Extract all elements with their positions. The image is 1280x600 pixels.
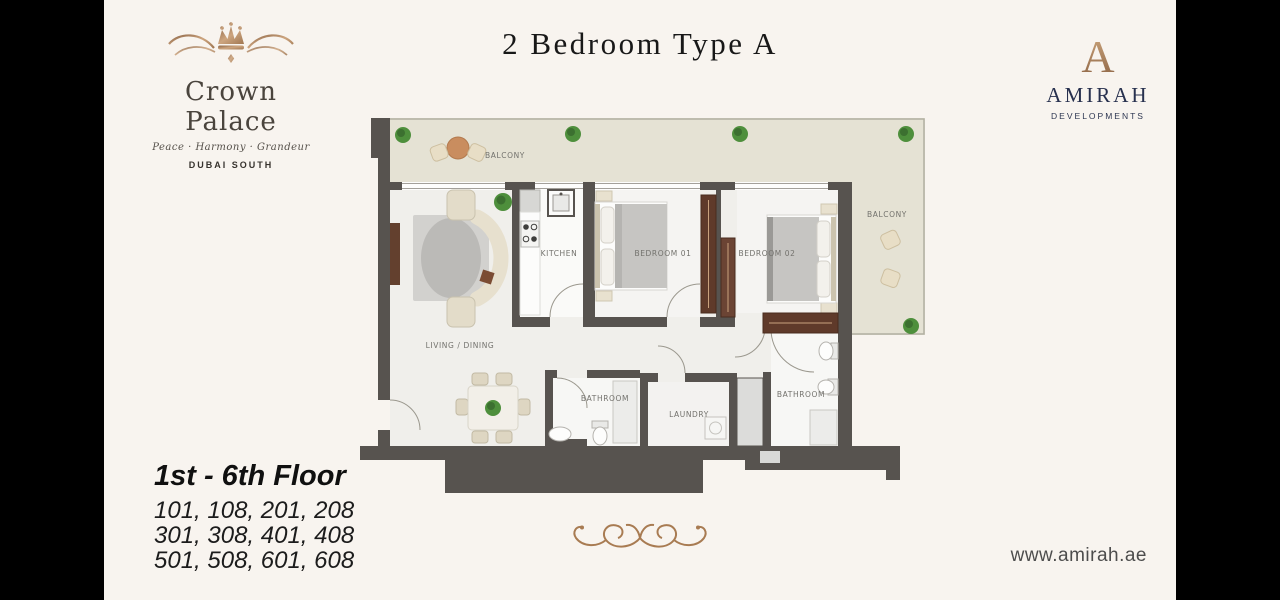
label-kitchen: KITCHEN: [541, 249, 578, 258]
wall-notch: [760, 451, 780, 463]
label-laundry: LAUNDRY: [669, 410, 709, 419]
amirah-monogram-icon: A: [1068, 30, 1128, 78]
unit-numbers-line: 101, 108, 201, 208: [154, 498, 354, 523]
brand-location: DUBAI SOUTH: [136, 160, 326, 170]
label-bedroom-01: BEDROOM 01: [634, 249, 691, 258]
page-title: 2 Bedroom Type A: [104, 26, 1176, 62]
label-living-dining: LIVING / DINING: [426, 341, 495, 350]
developer-name: AMIRAH: [1028, 83, 1168, 108]
label-bathroom-1: BATHROOM: [581, 394, 629, 403]
label-balcony-right: BALCONY: [867, 210, 907, 219]
label-bedroom-02: BEDROOM 02: [738, 249, 795, 258]
amirah-logo: A AMIRAH DEVELOPMENTS: [1028, 30, 1168, 121]
windows: [402, 182, 828, 190]
bedroom2-bed: [767, 204, 837, 313]
website-url: www.amirah.ae: [1011, 545, 1147, 567]
utility-shaft: [737, 378, 763, 446]
brochure-slide: Crown Palace Peace · Harmony · Grandeur …: [104, 0, 1176, 600]
developer-subtitle: DEVELOPMENTS: [1028, 111, 1168, 121]
label-balcony-top: BALCONY: [485, 151, 525, 160]
floor-info: 1st - 6th Floor 101, 108, 201, 208 301, …: [154, 460, 354, 573]
bedroom1-bed: [595, 191, 667, 301]
tv-console: [390, 223, 400, 285]
brand-tagline: Peace · Harmony · Grandeur: [136, 142, 326, 153]
label-bathroom-2: BATHROOM: [777, 390, 825, 399]
flourish-divider-icon: [410, 514, 870, 562]
laundry-appliance: [705, 417, 726, 439]
floor-plan: BALCONY BALCONY KITCHEN BEDROOM 01 BEDRO…: [355, 105, 945, 500]
brand-name: Crown Palace: [136, 77, 326, 137]
unit-numbers-line: 501, 508, 601, 608: [154, 548, 354, 573]
floor-heading: 1st - 6th Floor: [154, 460, 354, 493]
monogram-letter: A: [1081, 31, 1114, 78]
unit-numbers-line: 301, 308, 401, 408: [154, 523, 354, 548]
